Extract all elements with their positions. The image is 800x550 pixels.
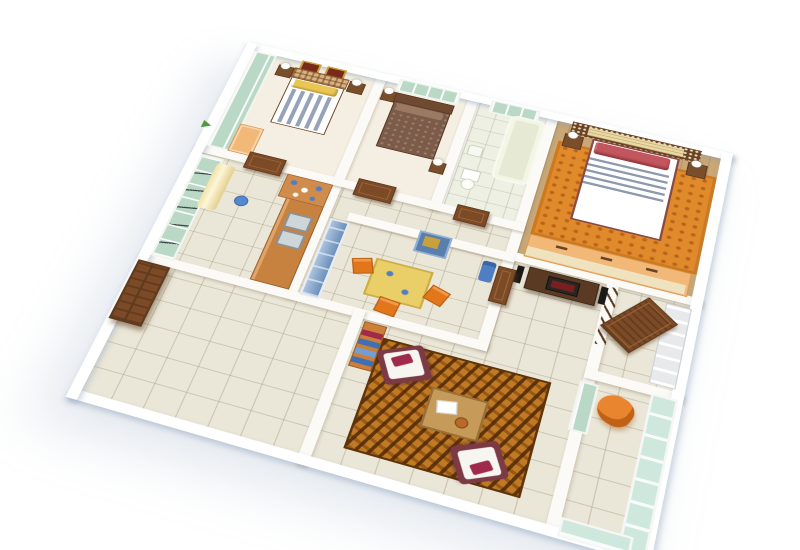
tv-screen	[551, 280, 576, 292]
kitchen-sink-2	[275, 229, 306, 250]
render-canvas	[0, 0, 800, 550]
floorplan	[65, 42, 733, 550]
dining-chair-1	[352, 258, 374, 274]
dresser-handle-1	[556, 245, 568, 250]
dining-wall-art-inner	[422, 236, 441, 249]
coffee-table-bowl	[453, 416, 470, 430]
armchair-1	[376, 345, 432, 385]
dresser-handle-2	[600, 256, 612, 261]
coffee-table-paper	[436, 400, 458, 415]
plant-icon	[199, 119, 211, 127]
tv	[545, 276, 581, 297]
scene	[248, 42, 728, 502]
dresser-handle-3	[646, 268, 658, 273]
